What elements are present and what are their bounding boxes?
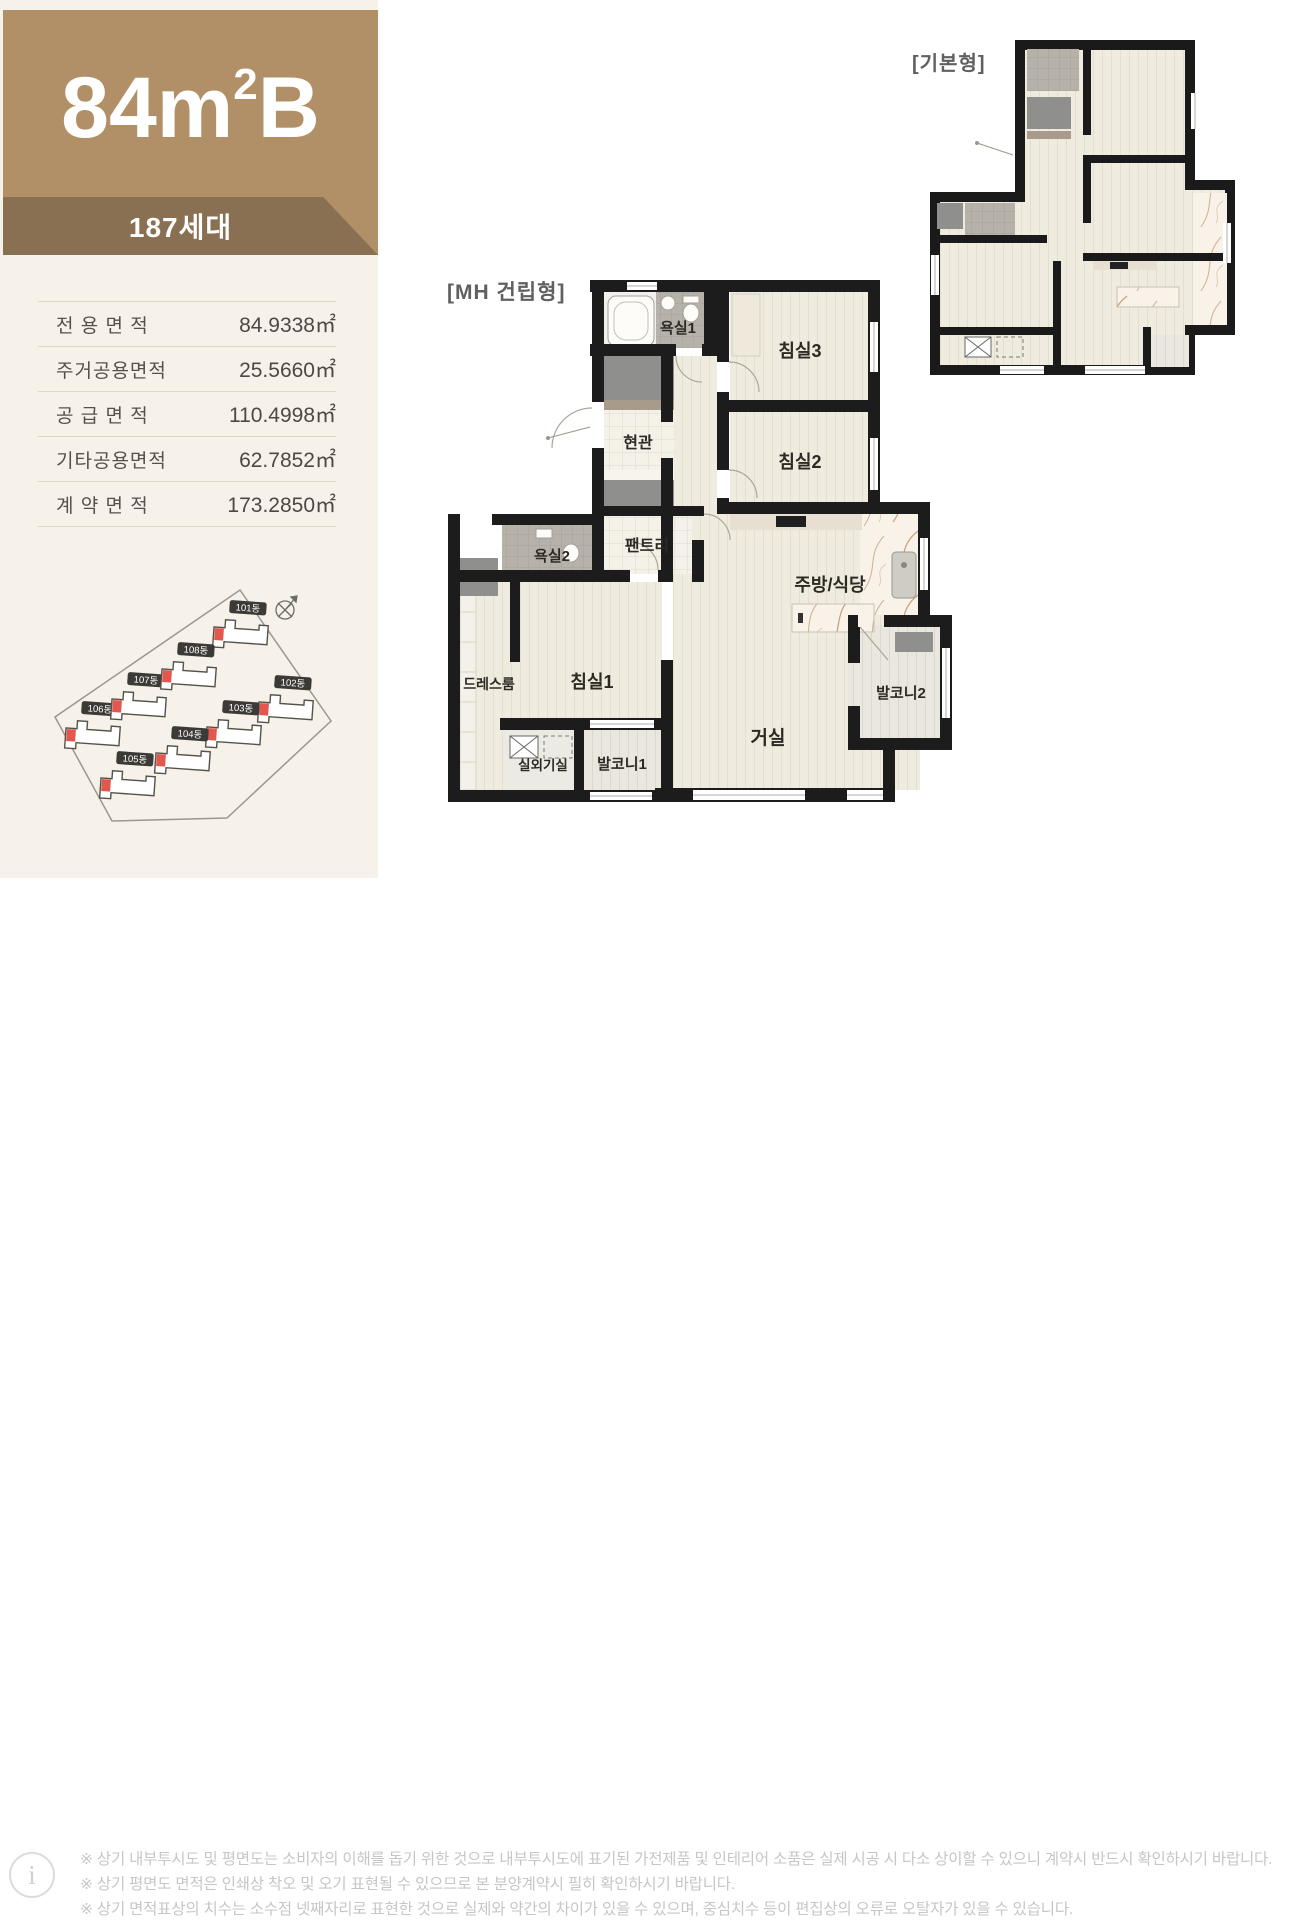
row-label: 계 약 면 적	[56, 491, 149, 518]
sidebar: 84m2B 187세대 전 용 면 적 84.9338㎡ 주거공용면적 25.5…	[0, 0, 378, 878]
room-label-entrance: 현관	[623, 433, 653, 452]
room-label-kitchen: 주방/식당	[794, 575, 866, 595]
highlighted-unit-marker	[66, 729, 76, 742]
row-label: 주거공용면적	[56, 356, 167, 383]
highlighted-unit-marker	[101, 779, 111, 792]
main-plan-title: [MH 건립형]	[447, 276, 565, 306]
footnote-line: ※ 상기 평면도 면적은 인쇄상 착오 및 오기 표현될 수 있으므로 본 분양…	[80, 1872, 1272, 1897]
table-row: 계 약 면 적 173.2850㎡	[38, 482, 336, 527]
highlighted-unit-marker	[112, 700, 122, 713]
building-label: 101동	[235, 602, 261, 615]
household-count: 187세대	[129, 206, 232, 246]
highlighted-unit-marker	[259, 703, 269, 716]
site-building: 103동	[206, 699, 263, 751]
room-label-bed2: 침실2	[778, 452, 821, 472]
info-icon: i	[9, 1852, 55, 1898]
footnote-line: ※ 상기 내부투시도 및 평면도는 소비자의 이해를 돕기 위한 것으로 내부투…	[80, 1847, 1272, 1872]
building-label: 103동	[228, 702, 254, 715]
footer: i ※ 상기 내부투시도 및 평면도는 소비자의 이해를 돕기 위한 것으로 내…	[0, 920, 1300, 1029]
site-building: 104동	[155, 725, 212, 777]
table-row: 주거공용면적 25.5660㎡	[38, 347, 336, 392]
sub-floor-plan	[905, 35, 1235, 380]
household-count-ribbon: 187세대	[3, 197, 378, 255]
room-label-pantry: 팬트리	[625, 537, 669, 555]
room-label-bed1: 침실1	[570, 672, 613, 692]
unit-type-title: 84m2B	[61, 63, 320, 151]
room-label-outdoor-unit: 실외기실	[518, 757, 568, 773]
room-label-balcony1: 발코니1	[597, 756, 647, 773]
building-label: 106동	[87, 703, 113, 716]
site-plan: 101동102동103동104동105동106동107동108동	[45, 583, 345, 833]
row-value: 84.9338㎡	[239, 309, 336, 339]
footnote-line: ※ 상기 면적표상의 치수는 소수점 넷째자리로 표현한 것으로 실제와 약간의…	[80, 1897, 1272, 1922]
building-label: 105동	[122, 753, 148, 766]
row-value: 110.4998㎡	[229, 399, 336, 429]
row-value: 62.7852㎡	[239, 444, 336, 474]
site-building: 102동	[258, 674, 315, 726]
table-row: 공 급 면 적 110.4998㎡	[38, 392, 336, 437]
room-label-dress: 드레스룸	[463, 676, 515, 692]
row-value: 25.5660㎡	[239, 354, 336, 384]
table-row: 기타공용면적 62.7852㎡	[38, 437, 336, 482]
disclaimer-notes: ※ 상기 내부투시도 및 평면도는 소비자의 이해를 돕기 위한 것으로 내부투…	[80, 1847, 1272, 1922]
room-label-bath2: 욕실2	[534, 548, 570, 565]
highlighted-unit-marker	[162, 670, 172, 683]
row-label: 전 용 면 적	[56, 311, 149, 338]
room-label-bath1: 욕실1	[660, 320, 696, 337]
site-building: 101동	[213, 599, 270, 651]
building-label: 104동	[177, 728, 203, 741]
highlighted-unit-marker	[207, 728, 217, 741]
compass-icon	[276, 596, 297, 619]
row-label: 공 급 면 적	[56, 401, 149, 428]
highlighted-unit-marker	[156, 754, 166, 767]
room-label-balcony2: 발코니2	[876, 685, 926, 702]
unit-size-suffix: B	[258, 60, 320, 156]
unit-size: 84m	[61, 60, 233, 156]
building-label: 102동	[280, 677, 306, 690]
room-label-bed3: 침실3	[778, 341, 821, 361]
row-value: 173.2850㎡	[227, 489, 336, 519]
unit-size-sup: 2	[233, 60, 257, 109]
building-label: 108동	[183, 644, 209, 657]
table-row: 전 용 면 적 84.9338㎡	[38, 301, 336, 347]
row-label: 기타공용면적	[56, 446, 167, 473]
highlighted-unit-marker	[214, 628, 224, 641]
sub-plan-title: [기본형]	[912, 47, 986, 76]
site-building: 107동	[111, 671, 168, 723]
room-label-living: 거실	[751, 727, 786, 749]
building-label: 107동	[133, 674, 159, 687]
area-table: 전 용 면 적 84.9338㎡ 주거공용면적 25.5660㎡ 공 급 면 적…	[38, 301, 336, 527]
site-building: 108동	[161, 641, 218, 693]
main-floor-plan: 욕실1 침실3 현관 침실2 팬트리 욕실2 주방/식당 드레스룸 침실1 거실…	[440, 270, 970, 830]
site-building: 105동	[100, 750, 157, 802]
